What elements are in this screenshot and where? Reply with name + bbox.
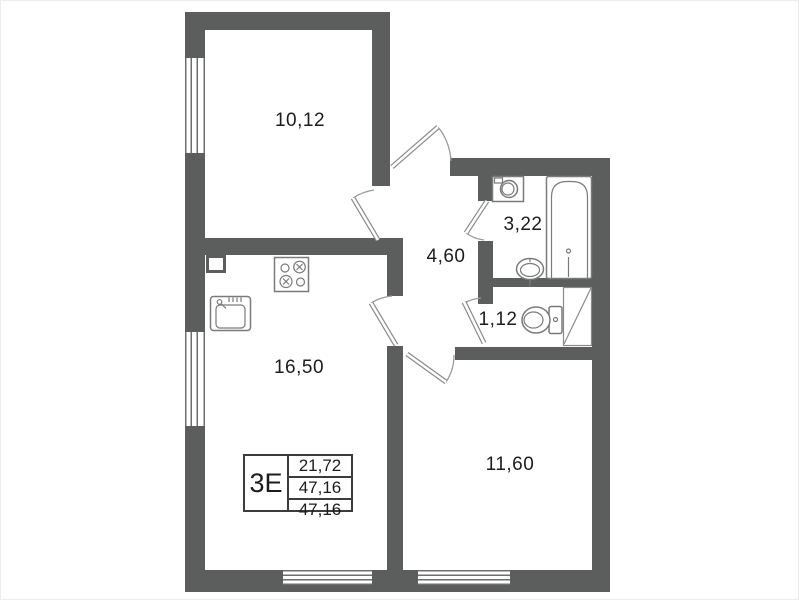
apartment-areas-column: 21,72 47,16 47,16 — [289, 456, 351, 510]
stove-icon — [275, 258, 309, 292]
info-area-row-1: 21,72 — [289, 456, 351, 478]
area-label-bathroom: 3,22 — [504, 214, 543, 236]
door-room-top-left — [353, 190, 378, 240]
washing-machine-icon — [493, 177, 524, 202]
area-label-wc: 1,12 — [479, 309, 518, 331]
toilet-icon — [522, 307, 562, 334]
entrance-door — [392, 127, 451, 167]
apartment-type-label: 3Е — [245, 456, 289, 510]
area-label-room-top-left: 10,12 — [275, 110, 325, 132]
info-area-row-3: 47,16 — [289, 500, 351, 520]
vent-shaft — [564, 288, 592, 346]
floor-plan: 10,12 4,60 3,22 1,12 16,50 11,60 3Е 21,7… — [0, 0, 799, 600]
kitchen-sink-icon — [211, 297, 251, 331]
door-kitchen — [371, 296, 396, 345]
door-bathroom — [466, 201, 487, 240]
wash-basin-icon — [517, 259, 544, 288]
door-room-bottom-right — [407, 354, 454, 382]
apartment-info-box: 3Е 21,72 47,16 47,16 — [243, 454, 353, 512]
bathtub-icon — [547, 177, 592, 279]
info-area-row-2: 47,16 — [289, 478, 351, 500]
area-label-hallway: 4,60 — [427, 246, 466, 268]
area-label-kitchen-living: 16,50 — [274, 357, 324, 379]
plan-linework — [0, 0, 799, 600]
area-label-room-bottom-right: 11,60 — [486, 454, 535, 476]
